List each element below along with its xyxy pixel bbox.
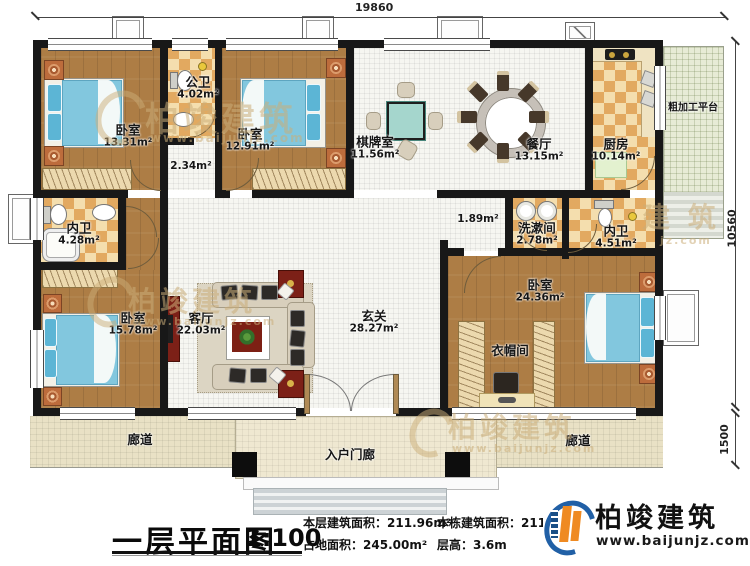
burner [609,52,615,58]
wall [118,198,126,262]
entry-door-leaf [393,374,399,414]
cushion [228,367,246,383]
entry-door-leaf [304,374,310,414]
nightstand [326,148,346,168]
chair [366,112,381,130]
platform-floor [663,46,724,194]
tv-cabinet [493,372,519,394]
toilet-bowl [50,204,67,225]
bed-sheet [586,294,606,360]
stat-floor-area: 本层建筑面积：211.96m² [303,514,451,531]
dimension-line-corridor [735,414,736,466]
bed-sheet [242,80,264,144]
stat-value: 245.00m² [363,538,427,552]
floor-passage [440,198,513,251]
cushion [240,284,258,300]
bay-window [663,290,699,346]
chair [497,143,509,163]
stat-label: 本层建筑面积： [303,516,387,530]
bathtub [42,228,80,262]
stat-label: 层高： [437,538,473,552]
chair [397,82,415,98]
cushion [290,310,305,327]
stat-building-area: 本栋建筑面积：211.9 [437,514,559,531]
brand-name: 柏竣建筑 [595,496,719,535]
wall [252,190,346,198]
tv [168,315,173,343]
pillow [306,84,321,112]
pillow [640,328,655,358]
sink [516,201,536,221]
pillow [640,297,655,327]
wall [437,190,593,198]
chair [428,112,443,130]
stat-land-area: 占地面积：245.00m² [303,536,427,553]
cushion [290,349,305,366]
wall [160,40,168,408]
chair [457,111,477,123]
floor-hall [168,138,215,190]
pillow [306,113,321,141]
cushion [220,284,238,300]
stat-storey-height: 层高：3.6m [437,536,507,553]
wardrobe-bedroom-tm [252,168,346,190]
window [60,407,135,420]
floor-plan-sheet: 卧室 13.31m² 公卫 4.02m² 2.34m² 卧室 12.91m² 棋… [0,0,750,566]
wardrobe-cloakroom-right [533,321,555,410]
nightstand [43,294,62,313]
wall [33,190,128,198]
brand-logo-icon [545,498,589,550]
chair [529,111,549,123]
stat-label: 占地面积： [303,538,363,552]
nightstand [43,387,62,406]
pillow [47,84,62,112]
toilet-bowl [177,70,193,91]
nightstand [326,58,346,78]
corridor-left [30,416,235,468]
light-fixture [198,62,207,71]
wall [636,408,663,416]
title-underline-shadow [112,555,302,556]
platform-steps [663,192,724,239]
wall [135,408,188,416]
window [384,38,490,51]
wall [440,248,464,256]
wall [33,408,60,416]
porch-column-right [445,452,470,477]
dimension-corridor-depth: 1500 [718,421,731,458]
window [452,407,636,420]
pillow [44,349,57,378]
brand-block: 柏竣建筑 www.baijunjz.com [543,494,743,560]
dimension-right-height: 10560 [726,206,739,250]
pillow [44,318,57,347]
mahjong-table [386,101,426,141]
plant [238,328,256,346]
cushion [250,368,267,383]
light-fixture [628,212,637,221]
dresser [479,393,535,408]
dresser-item [498,397,516,403]
sink [537,201,557,221]
wall [168,138,194,145]
nightstand [44,146,64,166]
ornament [287,380,294,387]
window [188,407,296,420]
logo-bar-blue [551,510,558,538]
cushion [261,285,278,300]
title-underline [112,551,302,554]
window [48,38,152,51]
coffee-table [226,316,270,360]
wall [346,40,354,198]
window [30,330,44,388]
wall [33,262,126,270]
toilet-bowl [598,208,612,227]
wall [440,240,448,408]
sink [92,204,116,221]
wall [593,190,630,198]
wall [505,190,513,251]
stat-label: 本栋建筑面积： [437,516,521,530]
wardrobe-bedroom-tl [42,168,132,190]
dimension-line-top [36,17,726,18]
wall [585,48,593,190]
window [172,38,208,51]
wall [396,408,452,416]
pillow [47,113,62,141]
wall [222,190,230,198]
wall [215,40,222,198]
burner [623,52,629,58]
corridor-right [495,416,663,468]
window [30,198,44,240]
dimension-top-width: 19860 [352,1,396,14]
dimension-tick [720,11,729,20]
window [226,38,338,51]
chair [497,71,509,91]
entry-steps [253,488,447,515]
stat-value: 3.6m [473,538,507,552]
porch-column-left [232,452,257,477]
dimension-tick [31,11,40,20]
nightstand [44,60,64,80]
cooktop [605,49,635,60]
window [654,296,666,340]
cushion [289,329,306,347]
window [654,66,666,130]
brand-website: www.baijunjz.com [596,533,750,549]
